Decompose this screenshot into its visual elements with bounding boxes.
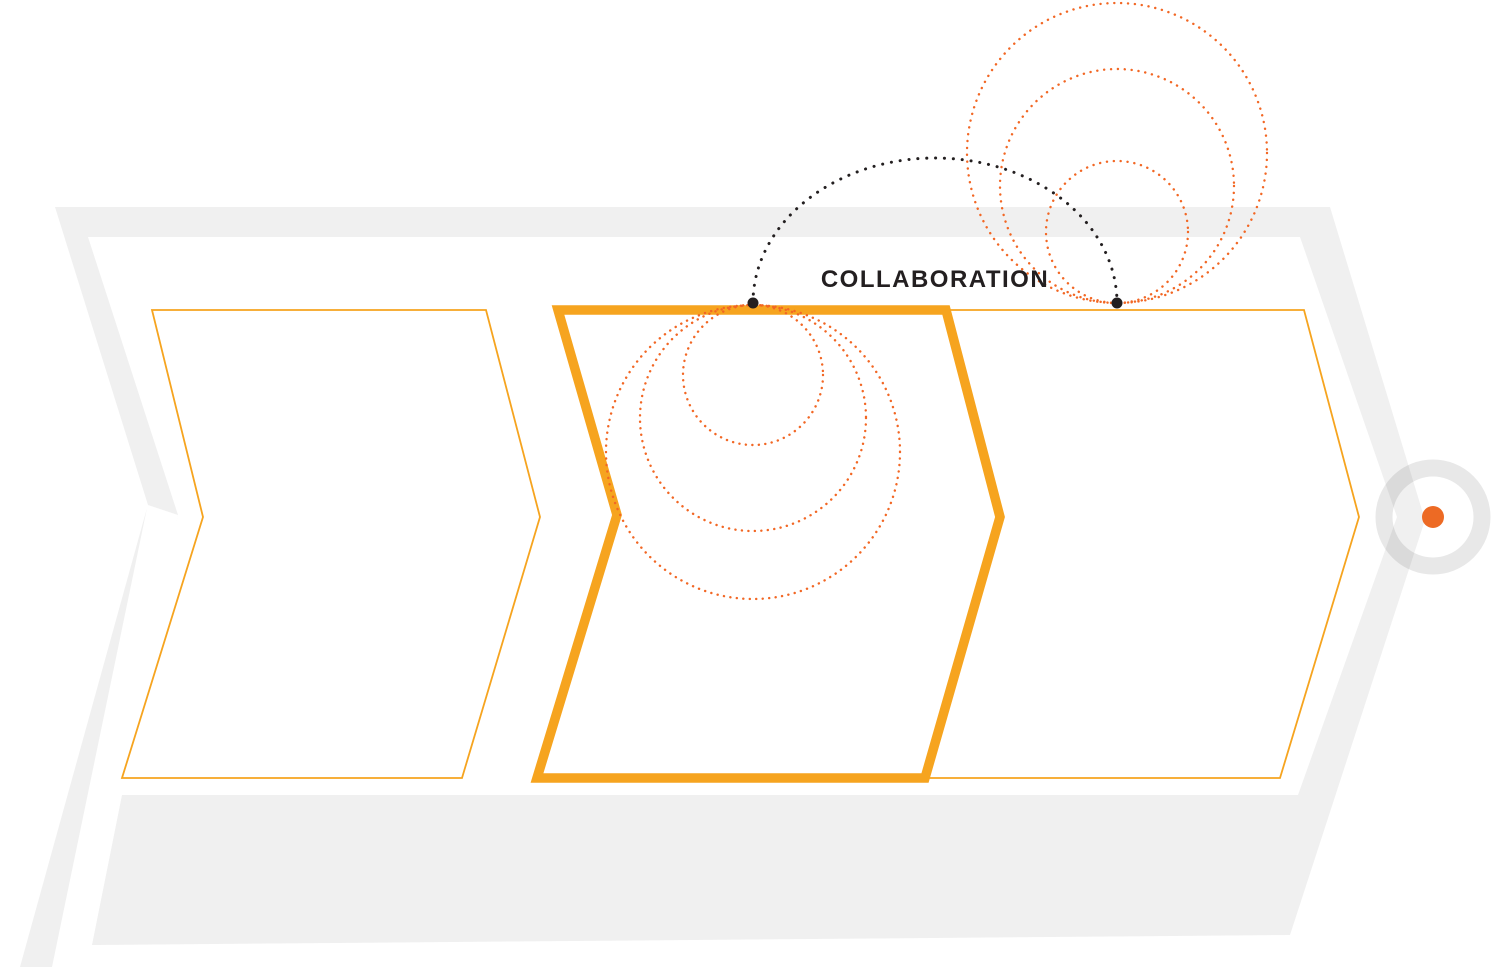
connector-endpoint-dot-right: [1112, 298, 1123, 309]
target-ring-dot: [1422, 506, 1444, 528]
infographic-stage: COLLABORATION: [0, 0, 1500, 971]
collaboration-label: COLLABORATION: [800, 266, 1070, 294]
inner-white-band: [88, 237, 1397, 795]
connector-endpoint-dot-left: [748, 298, 759, 309]
process-diagram-canvas: [0, 0, 1500, 971]
